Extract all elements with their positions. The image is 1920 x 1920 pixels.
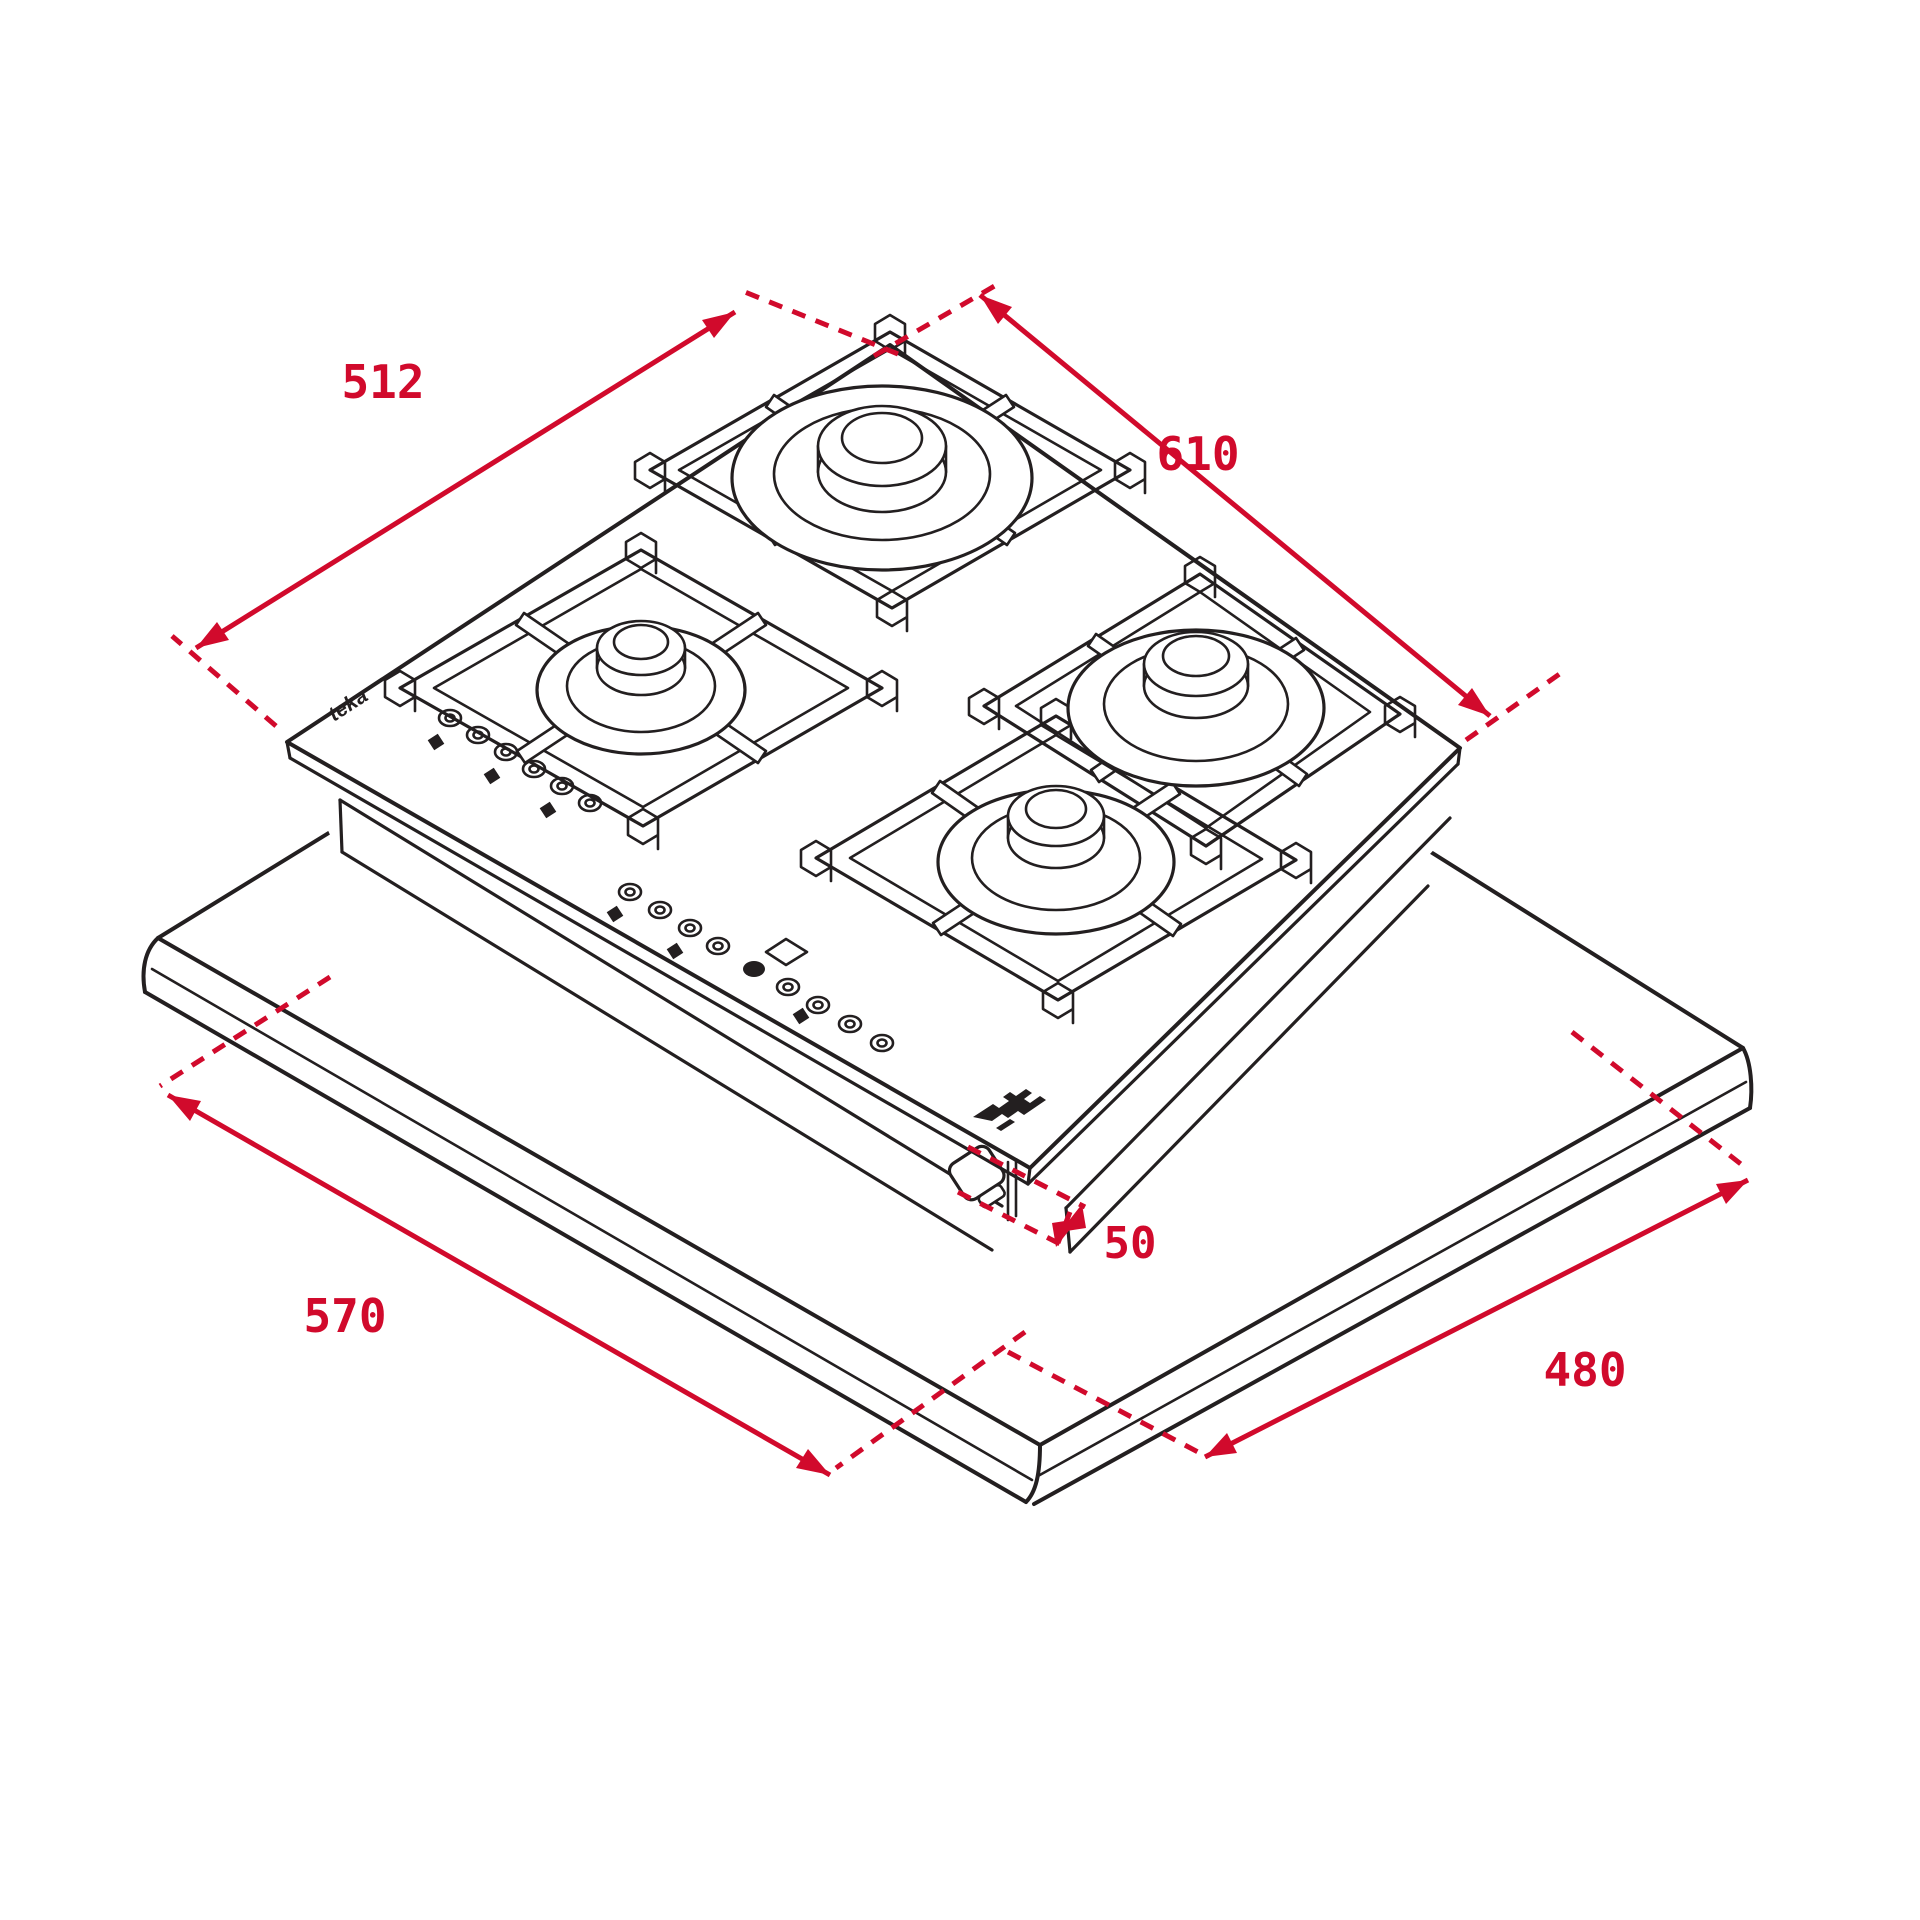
- glass-edge-tick-r: [1458, 748, 1460, 764]
- arrowhead: [1716, 1180, 1748, 1204]
- hob-dimension-drawing: teka: [0, 0, 1920, 1920]
- dim-label-610: 610: [1156, 427, 1239, 481]
- power-dot: [743, 961, 765, 977]
- box-left-corner: [340, 800, 342, 852]
- arrowhead: [196, 622, 229, 648]
- witness-line: [160, 977, 330, 1086]
- worktop-front-corner-round: [1026, 1445, 1040, 1502]
- arrowhead: [168, 1095, 201, 1121]
- burner-right-large: [1068, 630, 1324, 786]
- arrowhead: [702, 312, 735, 338]
- witness-line: [740, 290, 898, 354]
- worktop-right-corner-round: [1743, 1048, 1751, 1108]
- arrowhead: [1205, 1433, 1237, 1457]
- worktop-front-edge-round: [144, 938, 158, 992]
- diagram-canvas: teka: [0, 0, 1920, 1920]
- dim-label-570: 570: [303, 1289, 386, 1343]
- witness-line: [172, 636, 276, 726]
- arrowhead: [796, 1449, 830, 1475]
- dim-label-512: 512: [341, 355, 424, 409]
- dim-label-480: 480: [1543, 1343, 1626, 1397]
- burner-back-large: [732, 386, 1032, 570]
- dim-label-50: 50: [1104, 1218, 1157, 1269]
- glass-edge-tick-f: [1028, 1168, 1030, 1184]
